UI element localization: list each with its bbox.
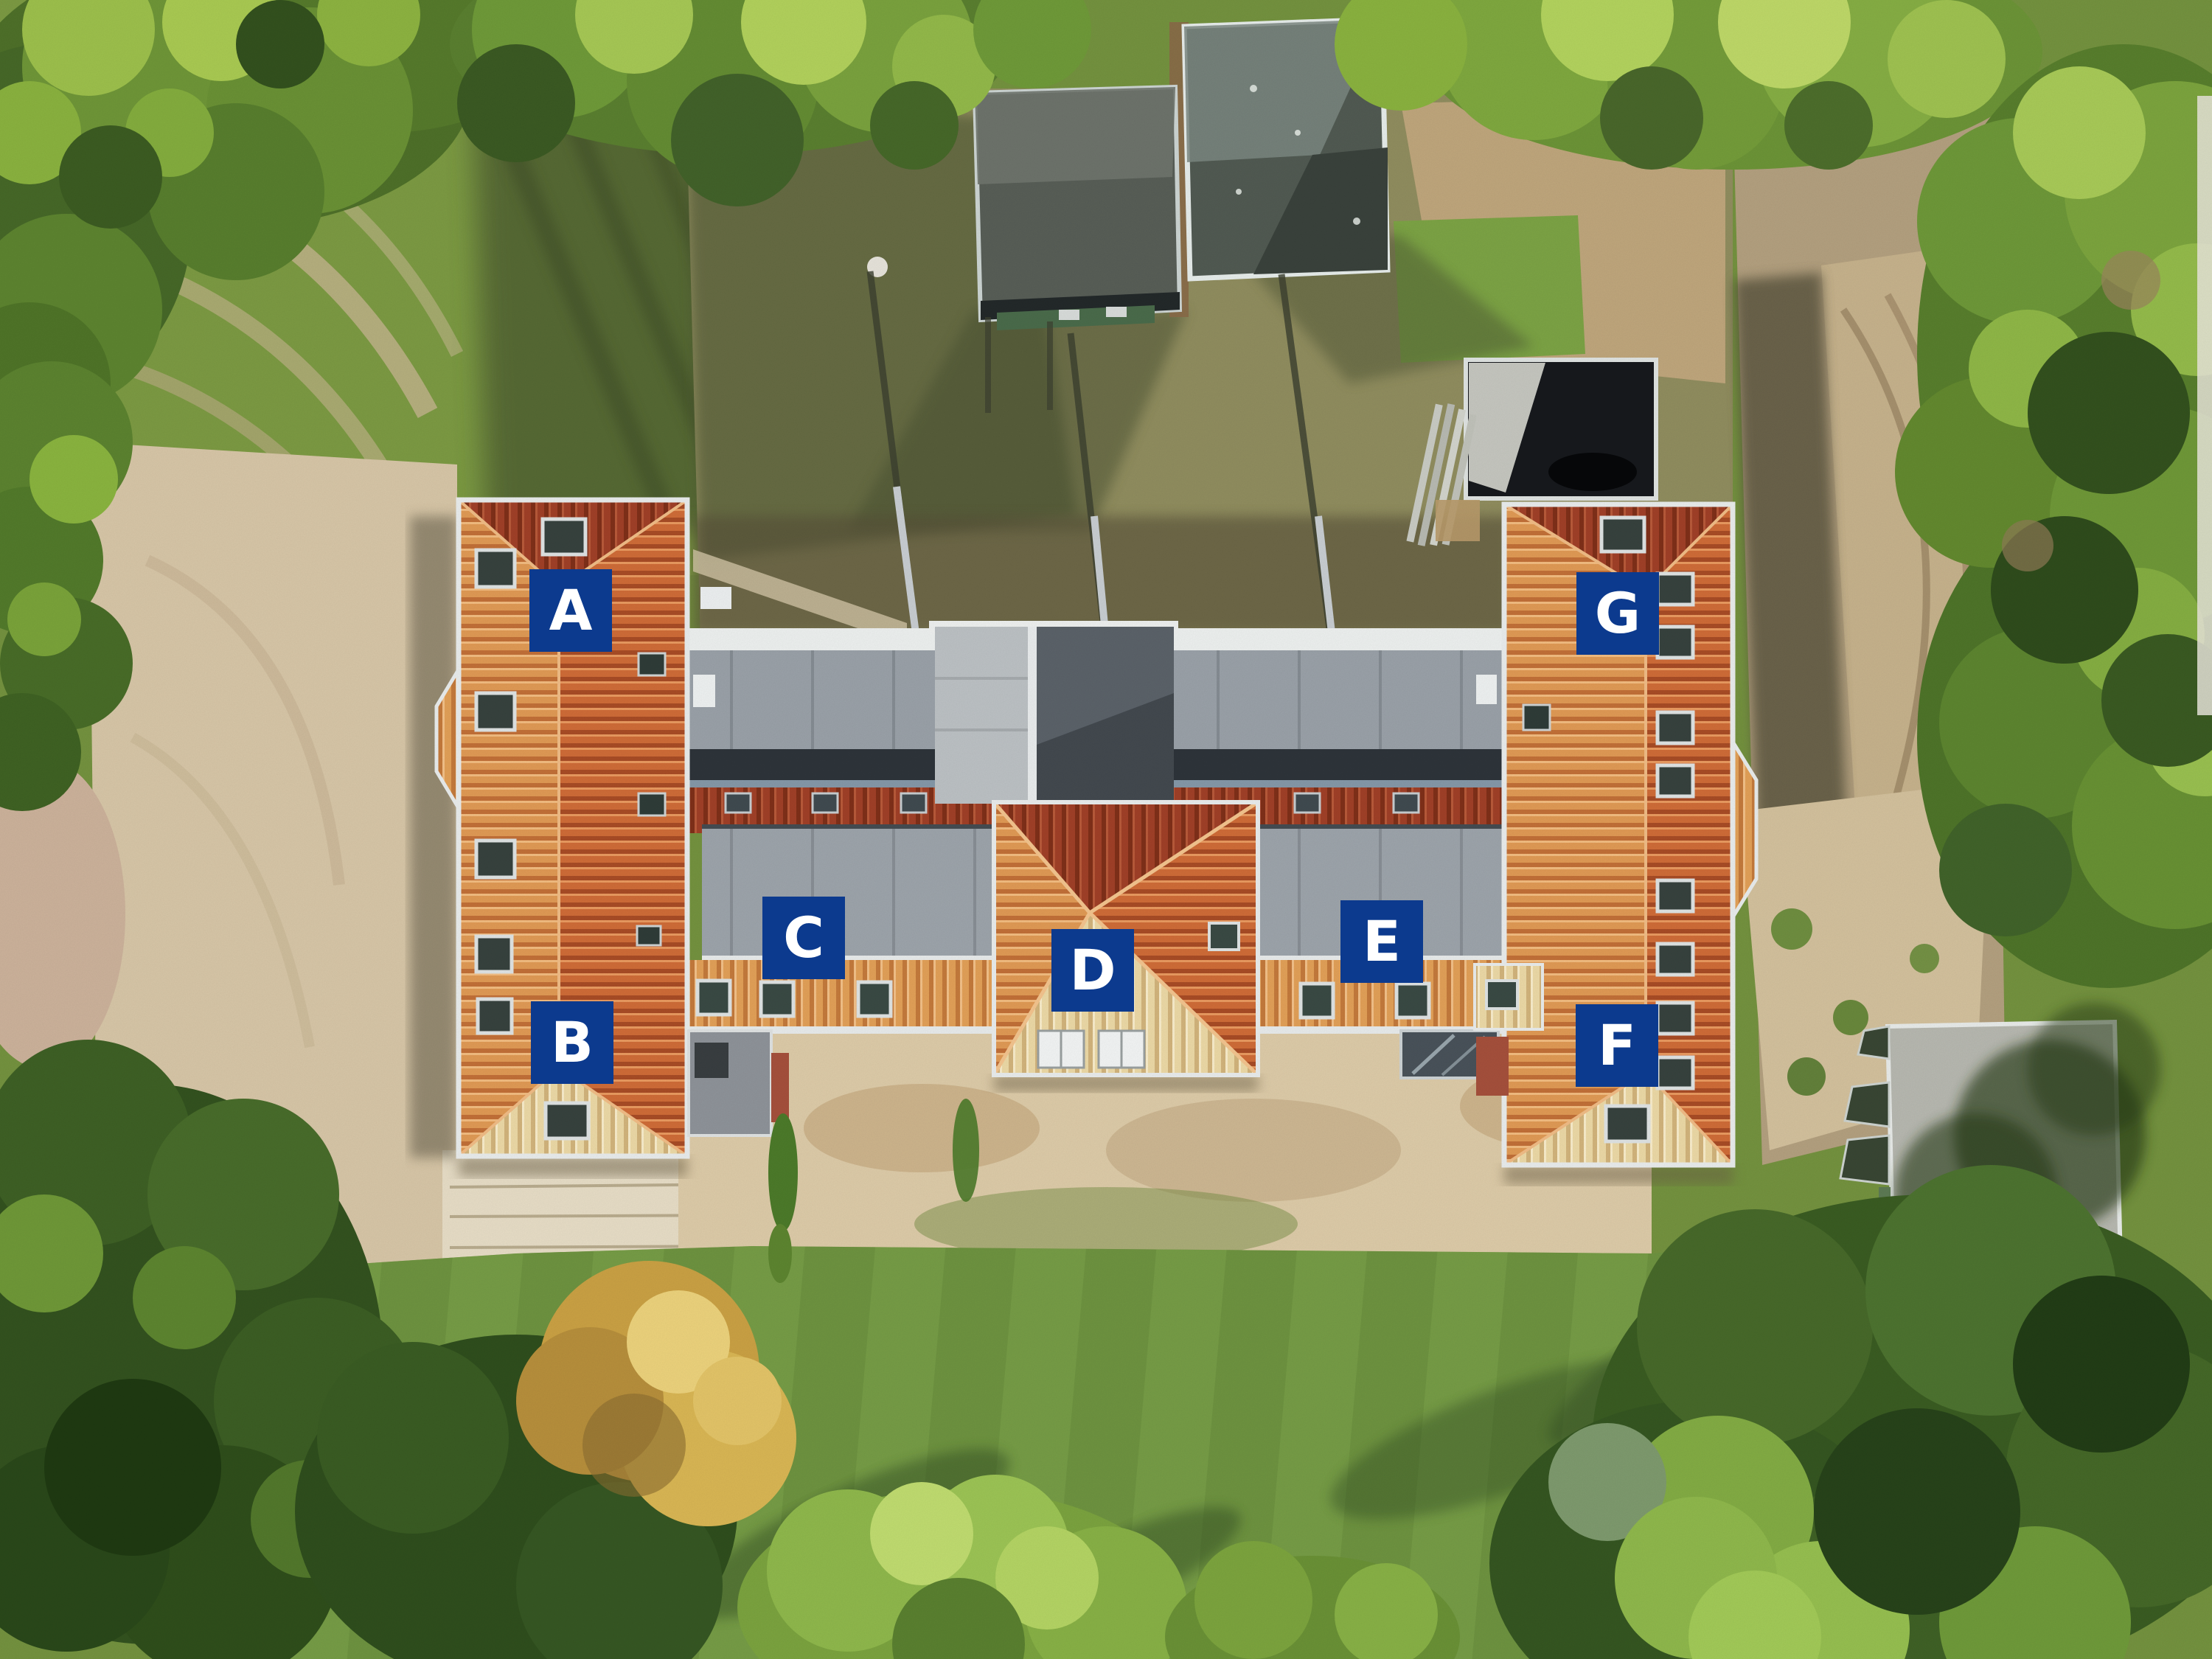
unit-label-g: G — [1576, 572, 1659, 655]
unit-label-f: F — [1576, 1004, 1658, 1087]
aerial-photo: A B C D E F G — [0, 0, 2212, 1659]
photo-grain — [0, 0, 2212, 1659]
unit-label-c: C — [762, 897, 845, 979]
unit-label-d: D — [1051, 929, 1134, 1012]
aerial-scene — [0, 0, 2212, 1659]
unit-label-a: A — [529, 569, 612, 652]
unit-label-e: E — [1340, 900, 1423, 983]
unit-label-b: B — [531, 1001, 613, 1084]
